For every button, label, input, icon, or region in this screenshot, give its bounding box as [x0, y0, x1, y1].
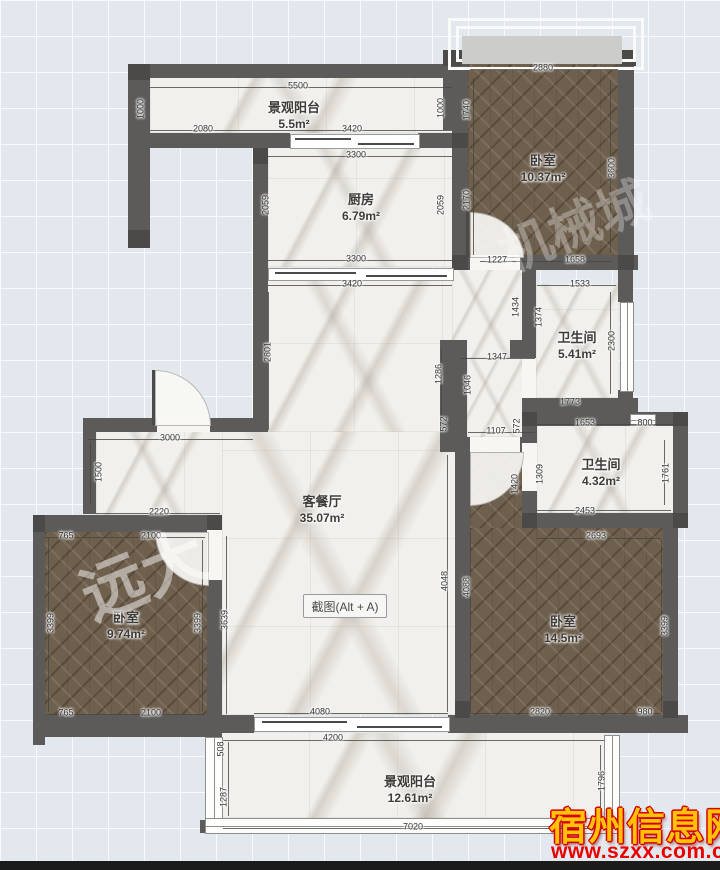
wall-segment — [618, 270, 633, 302]
dimension-label: 1653 — [575, 419, 595, 428]
room-area: 35.07m² — [300, 511, 345, 525]
wall-segment — [33, 715, 222, 737]
dimension-label: 2080 — [193, 125, 213, 134]
wall-corner-block — [128, 230, 150, 248]
dimension-label: 2059 — [437, 195, 446, 215]
dimension-label: 2453 — [575, 507, 595, 516]
dimension-label: 3300 — [346, 255, 366, 264]
wall-segment — [673, 426, 688, 513]
dimension-label: 3420 — [342, 125, 362, 134]
dimension-label: 1761 — [662, 463, 671, 483]
dimension-label: 1286 — [435, 364, 444, 384]
sliding-door — [254, 717, 450, 732]
wall-corner-block — [618, 255, 634, 270]
room-label: 景观阳台5.5m² — [268, 97, 320, 131]
dimension-label: 2170 — [463, 190, 472, 210]
room-label: 客餐厅35.07m² — [300, 491, 345, 525]
room-name: 景观阳台 — [384, 771, 436, 790]
wall-segment — [128, 133, 290, 148]
dimension-label: 2100 — [141, 709, 161, 718]
dimension-label: 1773 — [560, 398, 580, 407]
dimension-label: 508 — [217, 741, 226, 756]
room-area: 4.32m² — [581, 474, 620, 488]
room-label: 卧室10.37m² — [521, 150, 566, 184]
room-label: 卫生间4.32m² — [581, 454, 620, 488]
room-area: 5.5m² — [268, 117, 320, 131]
wall-corner-block — [253, 148, 268, 164]
room-label: 卧室14.5m² — [544, 611, 582, 645]
dimension-label: 3399 — [194, 613, 203, 633]
bay-window-sill — [462, 36, 622, 64]
room-label: 卧室9.74m² — [107, 607, 145, 641]
dimension-label: 1533 — [570, 280, 590, 289]
wall-segment — [522, 513, 688, 528]
dimension-label: 4048 — [441, 571, 450, 591]
wall-corner-block — [522, 412, 537, 426]
wall-segment — [440, 340, 467, 452]
dimension-label: 1309 — [536, 464, 545, 484]
room-floor — [222, 432, 455, 715]
room-name: 卧室 — [107, 607, 145, 626]
room-name: 卧室 — [544, 611, 582, 630]
dimension-label: 765 — [58, 532, 73, 541]
dimension-label: 4088 — [463, 577, 472, 597]
dimension-label: 2693 — [586, 532, 606, 541]
dimension-label: 1740 — [463, 100, 472, 120]
wall-corner-block — [663, 701, 678, 718]
dimension-line — [470, 713, 661, 714]
dimension-label: 5500 — [288, 82, 308, 91]
bottom-bar — [0, 861, 720, 870]
door-leaf — [466, 212, 469, 257]
dimension-line — [223, 740, 604, 741]
dimension-line — [470, 532, 471, 712]
wall-segment — [128, 64, 150, 248]
dimension-label: 4200 — [323, 734, 343, 743]
dimension-label: 1107 — [486, 427, 505, 436]
wall-segment — [33, 515, 210, 532]
dimension-label: 3000 — [160, 434, 180, 443]
wall-corner-block — [673, 513, 688, 528]
dimension-label: 980 — [637, 708, 652, 717]
dimension-label: 2059 — [262, 195, 271, 215]
room-name: 卧室 — [521, 150, 566, 169]
wall-corner-block — [452, 255, 468, 270]
room-area: 9.74m² — [107, 627, 145, 641]
wall-corner-block — [33, 515, 45, 532]
dimension-label: 765 — [58, 709, 73, 718]
dimension-label: 572 — [513, 418, 522, 433]
room-label: 卫生间5.41m² — [557, 327, 596, 361]
dimension-line — [254, 713, 448, 714]
wall-corner-block — [455, 701, 470, 718]
dimension-label: 1046 — [464, 375, 473, 395]
floor-plan-canvas: 景观阳台5.5m²厨房6.79m²卧室10.37m²卫生间5.41m²卫生间4.… — [0, 0, 720, 870]
dimension-label: 2801 — [264, 342, 273, 362]
room-floor — [266, 279, 452, 432]
room-area: 5.41m² — [557, 347, 596, 361]
dimension-label: 3639 — [221, 610, 230, 630]
room-name: 景观阳台 — [268, 97, 320, 116]
dimension-label: 2220 — [149, 508, 169, 517]
dimension-label: 1658 — [565, 256, 585, 265]
room-name: 卫生间 — [581, 454, 620, 473]
dimension-label: 3300 — [346, 151, 366, 160]
dimension-label: 2300 — [608, 331, 617, 351]
wall-segment — [253, 148, 268, 432]
sliding-door — [290, 134, 420, 149]
dimension-label: 1796 — [598, 771, 607, 791]
dimension-label: 1374 — [535, 307, 544, 327]
room-area: 12.61m² — [384, 791, 436, 805]
wall-corner-block — [522, 513, 537, 528]
room-area: 6.79m² — [342, 209, 380, 223]
wall-segment — [618, 50, 634, 270]
wall-corner-block — [452, 133, 468, 148]
dimension-label: 1000 — [437, 98, 446, 118]
dimension-label: 3600 — [608, 158, 617, 178]
wall-segment — [510, 340, 536, 358]
room-name: 厨房 — [342, 189, 380, 208]
dimension-label: 1227 — [487, 256, 507, 265]
door-leaf — [152, 370, 155, 425]
dimension-label: 1500 — [95, 462, 104, 482]
window — [620, 302, 634, 392]
dimension-label: 1420 — [511, 474, 520, 494]
dimension-label: 800 — [637, 419, 652, 428]
dimension-label: 572 — [440, 416, 449, 431]
door-opening — [522, 358, 536, 398]
dimension-label: 4080 — [310, 708, 330, 717]
screenshot-button[interactable]: 截图(Alt + A) — [303, 594, 387, 618]
dimension-label: 3420 — [342, 280, 362, 289]
wall-corner-block — [128, 64, 150, 80]
room-area: 14.5m² — [544, 631, 582, 645]
wall-segment — [33, 515, 45, 745]
door-swing-arc — [155, 370, 211, 426]
dimension-label: 2100 — [141, 532, 161, 541]
dimension-label: 1347 — [487, 353, 507, 362]
dimension-label: 3399 — [661, 616, 670, 636]
room-area: 10.37m² — [521, 170, 566, 184]
wall-segment — [448, 715, 688, 733]
wall-segment — [128, 64, 468, 78]
room-name: 客餐厅 — [300, 491, 345, 510]
dimension-line — [537, 510, 671, 511]
room-label: 厨房6.79m² — [342, 189, 380, 223]
dimension-line — [537, 424, 686, 425]
dimension-line — [473, 78, 474, 255]
dimension-label: 1000 — [137, 99, 146, 119]
dimension-label: 2880 — [533, 64, 553, 73]
room-floor — [96, 432, 222, 515]
room-label: 景观阳台12.61m² — [384, 771, 436, 805]
wall-segment — [222, 715, 254, 733]
dimension-line — [90, 442, 91, 505]
dimension-label: 1287 — [220, 787, 229, 807]
dimension-label: 3399 — [47, 613, 56, 633]
dimension-label: 1434 — [512, 297, 521, 317]
door-opening — [470, 437, 520, 452]
wall-segment — [210, 418, 255, 432]
wall-segment — [200, 720, 222, 735]
dimension-label: 7020 — [403, 823, 423, 832]
dimension-label: 2820 — [530, 708, 550, 717]
door-opening — [207, 530, 222, 580]
room-name: 卫生间 — [557, 327, 596, 346]
